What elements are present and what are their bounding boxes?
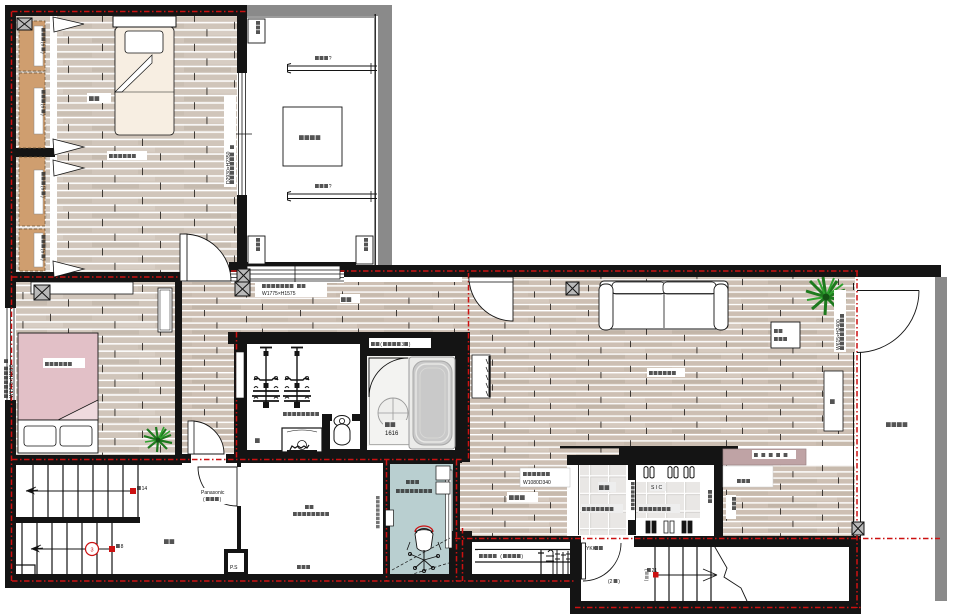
svg-text:14: 14 <box>142 486 148 492</box>
svg-text:P.S: P.S <box>230 565 238 571</box>
svg-text:3: 3 <box>91 548 94 554</box>
svg-text:Panasonic: Panasonic <box>201 490 225 496</box>
svg-text:S I C: S I C <box>651 485 663 491</box>
svg-text:(2: (2 <box>608 579 613 585</box>
svg-text:(6: (6 <box>40 104 46 109</box>
svg-text:8: 8 <box>121 544 124 550</box>
svg-text:(6: (6 <box>40 249 46 254</box>
svg-text:21: 21 <box>652 568 658 574</box>
svg-text:W1080D340: W1080D340 <box>523 480 551 486</box>
svg-text:1616: 1616 <box>385 431 399 437</box>
svg-text:W1775×H1580: W1775×H1580 <box>9 364 15 398</box>
svg-text:W1775×H1575: W1775×H1575 <box>262 291 296 297</box>
svg-text:?: ? <box>329 184 332 190</box>
svg-text:(6: (6 <box>40 186 46 191</box>
svg-text:(6: (6 <box>40 42 46 47</box>
svg-text:?: ? <box>329 56 332 62</box>
svg-text:3: 3 <box>401 342 404 348</box>
